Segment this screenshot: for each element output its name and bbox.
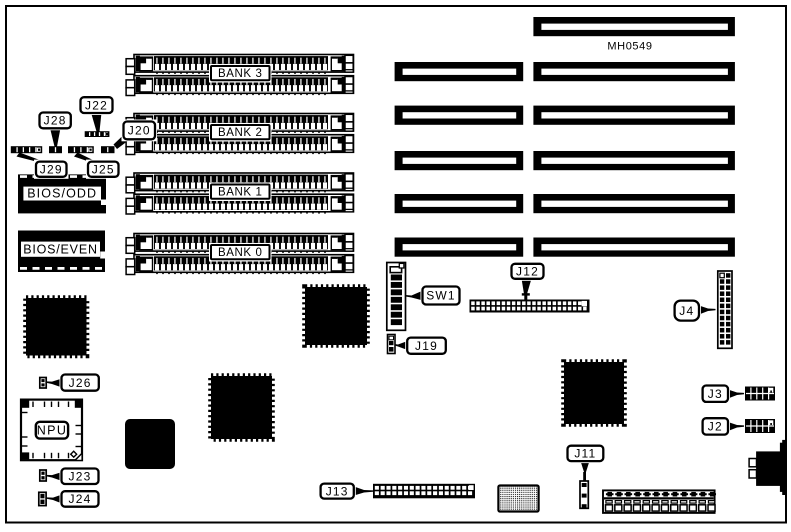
svg-text:J24: J24 xyxy=(69,492,92,506)
svg-text:J29: J29 xyxy=(40,162,63,176)
svg-text:J22: J22 xyxy=(85,98,108,112)
svg-text:J4: J4 xyxy=(679,304,694,318)
svg-text:BANK 0: BANK 0 xyxy=(218,247,263,259)
svg-text:MH0549: MH0549 xyxy=(607,41,652,53)
svg-text:BIOS/ODD: BIOS/ODD xyxy=(27,187,97,201)
svg-text:BANK 3: BANK 3 xyxy=(218,68,263,80)
svg-text:BANK 1: BANK 1 xyxy=(218,187,263,199)
svg-text:J3: J3 xyxy=(708,387,723,401)
svg-text:J23: J23 xyxy=(69,469,92,483)
svg-text:J2: J2 xyxy=(708,420,723,434)
svg-text:SW1: SW1 xyxy=(426,289,456,303)
svg-text:J13: J13 xyxy=(326,484,349,498)
svg-text:J28: J28 xyxy=(44,114,67,128)
svg-text:J25: J25 xyxy=(92,162,115,176)
svg-text:BANK 2: BANK 2 xyxy=(218,127,263,139)
svg-text:J20: J20 xyxy=(128,124,151,138)
svg-text:NPU: NPU xyxy=(37,423,68,437)
svg-text:J26: J26 xyxy=(69,376,92,390)
svg-text:BIOS/EVEN: BIOS/EVEN xyxy=(23,243,98,257)
svg-text:J19: J19 xyxy=(415,339,438,353)
svg-text:J11: J11 xyxy=(574,447,596,461)
svg-text:J12: J12 xyxy=(516,265,539,279)
